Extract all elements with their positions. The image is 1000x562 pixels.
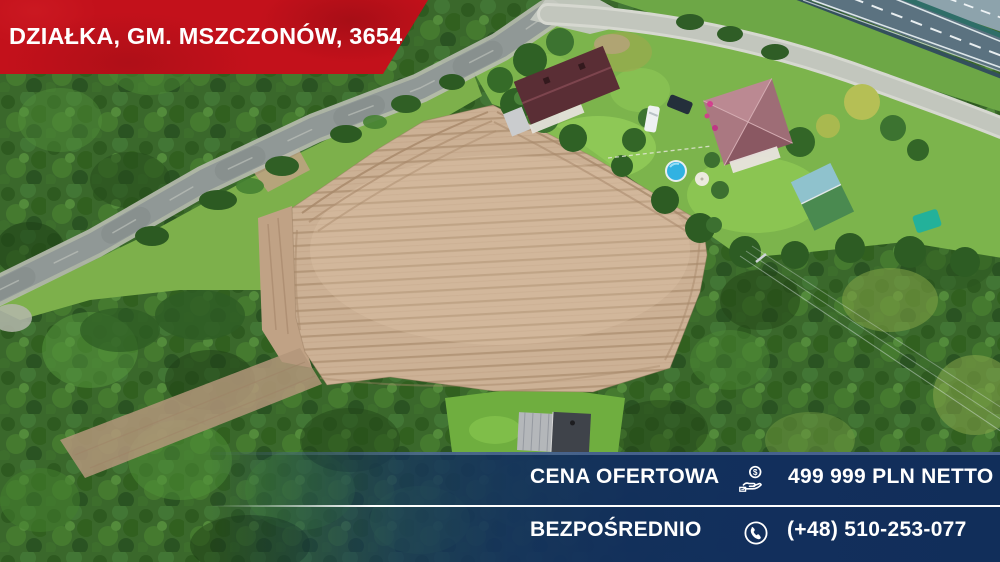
title-banner: DZIAŁKA, GM. MSZCZONÓW, 3654 m2 xyxy=(0,0,428,74)
contact-value: (+48) 510-253-077 xyxy=(787,518,967,542)
price-value: 499 999 PLN NETTO xyxy=(788,465,993,489)
svg-text:$: $ xyxy=(753,468,758,477)
contact-label: BEZPOŚREDNIO xyxy=(530,518,702,542)
plot-title: DZIAŁKA, GM. MSZCZONÓW, 3654 m xyxy=(9,23,430,50)
price-label: CENA OFERTOWA xyxy=(530,465,719,489)
info-banner: CENA OFERTOWA $ 499 999 PLN NETTO BEZPOŚ… xyxy=(0,452,1000,562)
phone-circle-icon xyxy=(743,520,769,551)
banner-divider xyxy=(0,505,1000,507)
hand-coin-icon: $ xyxy=(737,464,767,499)
bottom-house xyxy=(517,410,591,454)
listing-image: DZIAŁKA, GM. MSZCZONÓW, 3654 m2 CENA OFE… xyxy=(0,0,1000,562)
